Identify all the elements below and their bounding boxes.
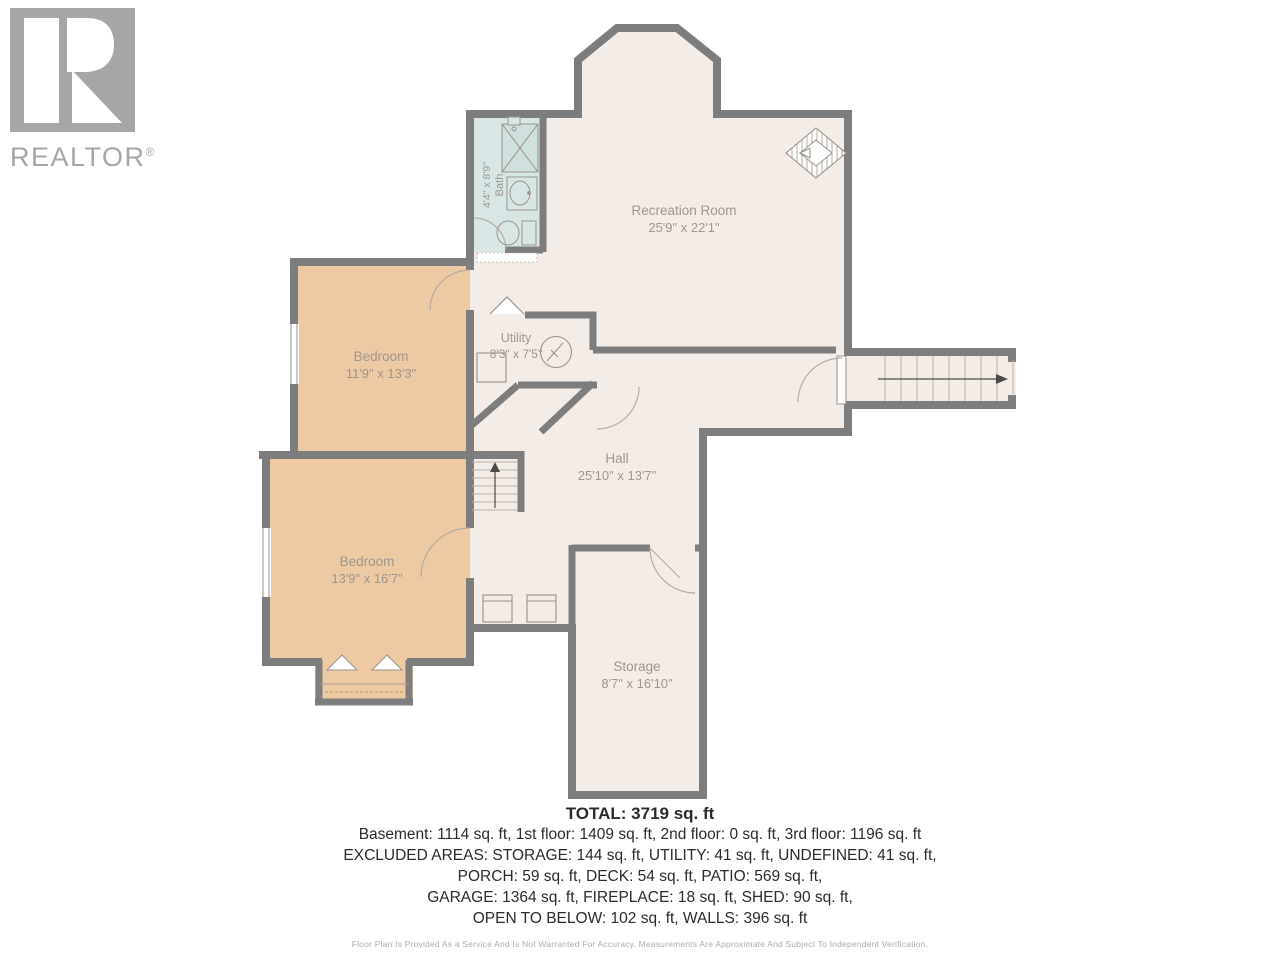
total-area: TOTAL: 3719 sq. ft bbox=[0, 804, 1280, 824]
label-bedroom2-name: Bedroom bbox=[340, 554, 395, 569]
floor-plan-page: REALTOR® bbox=[0, 0, 1280, 960]
shower bbox=[502, 117, 538, 172]
label-storage-name: Storage bbox=[613, 659, 660, 674]
label-storage-dims: 8'7" x 16'10" bbox=[601, 676, 673, 691]
floor-main-area bbox=[470, 28, 1016, 795]
label-bath-name: Bath bbox=[494, 174, 506, 197]
label-bedroom2-dims: 13'9" x 16'7" bbox=[331, 571, 403, 586]
bath-threshold bbox=[477, 253, 537, 262]
label-bedroom1-name: Bedroom bbox=[354, 349, 409, 364]
label-hall-dims: 25'10" x 13'7" bbox=[578, 468, 657, 483]
summary-line-floors: Basement: 1114 sq. ft, 1st floor: 1409 s… bbox=[0, 824, 1280, 845]
label-bedroom1-dims: 11'9" x 13'3" bbox=[346, 366, 417, 381]
summary-line-garage-fireplace-shed: GARAGE: 1364 sq. ft, FIREPLACE: 18 sq. f… bbox=[0, 887, 1280, 908]
summary-line-excluded: EXCLUDED AREAS: STORAGE: 144 sq. ft, UTI… bbox=[0, 845, 1280, 866]
summary-line-porch-deck-patio: PORCH: 59 sq. ft, DECK: 54 sq. ft, PATIO… bbox=[0, 866, 1280, 887]
label-bath-dims: 4'4" x 8'9" bbox=[481, 162, 493, 208]
summary-line-open-walls: OPEN TO BELOW: 102 sq. ft, WALLS: 396 sq… bbox=[0, 908, 1280, 929]
floor-bay-window bbox=[315, 658, 413, 704]
disclaimer-text: Floor Plan Is Provided As a Service And … bbox=[0, 939, 1280, 949]
area-summary: TOTAL: 3719 sq. ft Basement: 1114 sq. ft… bbox=[0, 804, 1280, 949]
label-recreation-name: Recreation Room bbox=[631, 203, 736, 218]
label-utility-dims: 8'3" x 7'5" bbox=[490, 347, 542, 361]
window-bedroom-1 bbox=[289, 324, 299, 384]
label-recreation-dims: 25'9" x 22'1" bbox=[648, 220, 720, 235]
water-heater bbox=[541, 337, 572, 368]
label-utility-name: Utility bbox=[501, 331, 532, 345]
window-bedroom-2 bbox=[261, 528, 271, 597]
label-hall-name: Hall bbox=[605, 451, 628, 466]
